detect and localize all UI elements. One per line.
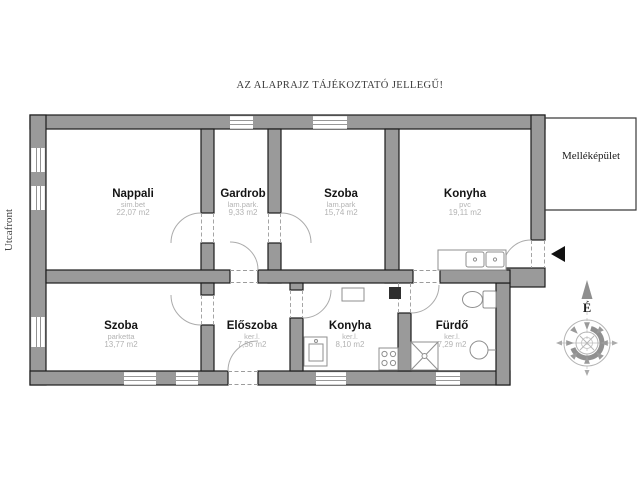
shower-tray (411, 342, 438, 370)
compass-rose-icon (556, 280, 618, 376)
floorplan-page: AZ ALAPRAJZ TÁJÉKOZTATÓ JELLEGŰ! Utcafro… (0, 0, 640, 480)
kitchen-table (342, 288, 364, 301)
kitchen-sink-unit (304, 337, 327, 366)
annex-outline (545, 118, 636, 210)
floorplan-drawing (0, 0, 640, 480)
entrance-arrow-icon (551, 246, 565, 262)
chimney-block (389, 287, 401, 299)
washbasin (470, 341, 496, 359)
stove (379, 348, 398, 370)
toilet (463, 291, 497, 308)
kitchen-counter-top (438, 250, 506, 270)
